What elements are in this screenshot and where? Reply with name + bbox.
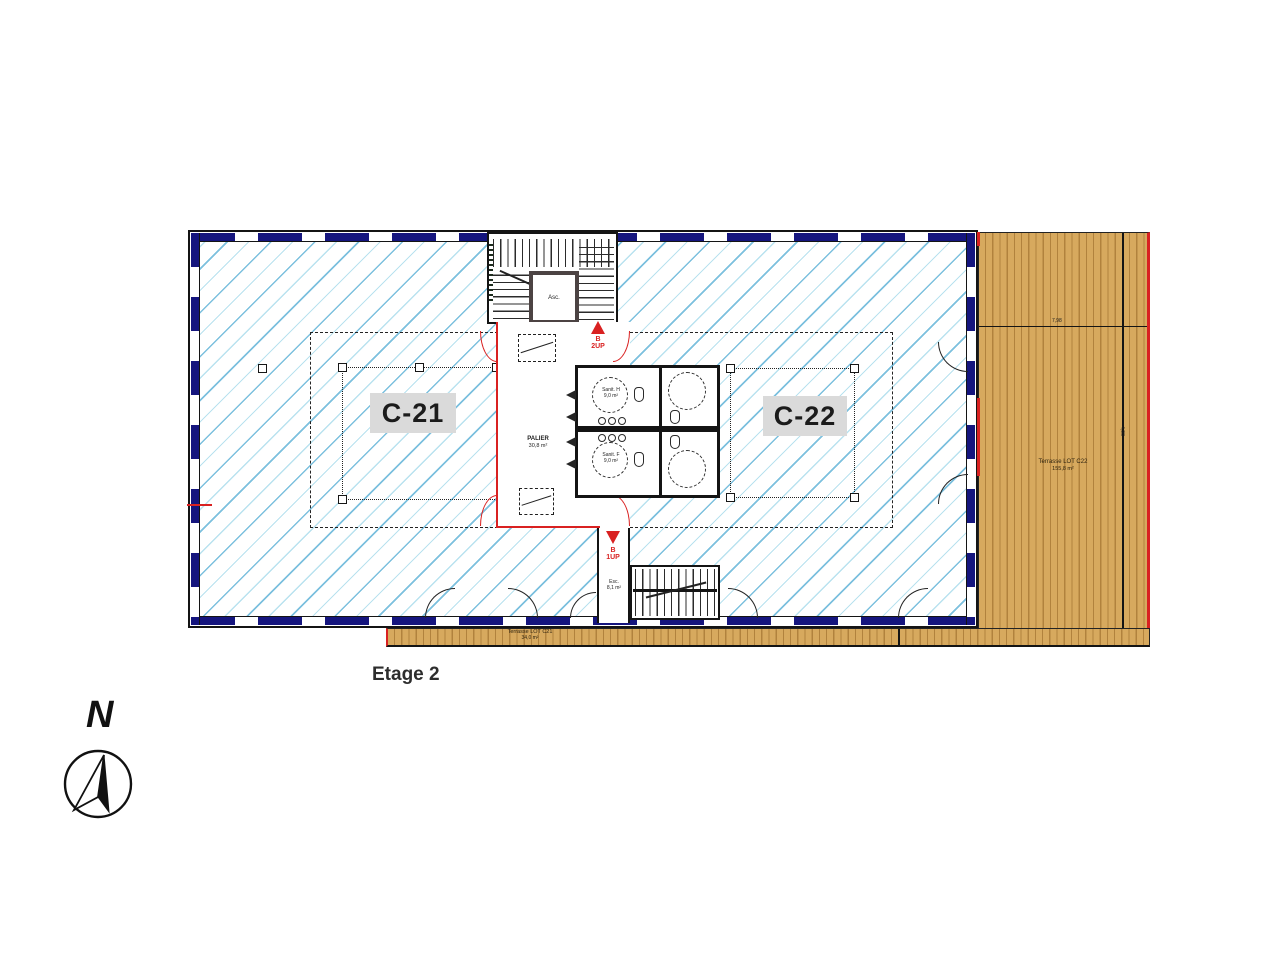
sink <box>618 434 626 442</box>
toilet <box>634 452 644 467</box>
floor-title: Etage 2 <box>372 664 440 686</box>
zone-c22-text: C-22 <box>774 401 837 432</box>
corner-marker <box>258 364 267 373</box>
toilet <box>670 410 680 424</box>
palier-label: PALIER 30,8 m² <box>508 436 568 450</box>
window-band-right <box>966 233 975 625</box>
stair-down-letter: B <box>610 547 615 554</box>
zone-c21-dotted <box>342 367 497 500</box>
duct-box <box>518 334 556 362</box>
corner-marker <box>850 493 859 502</box>
toilet <box>634 387 644 402</box>
red-edge-segment <box>977 232 980 246</box>
sanitary-mid-wall <box>575 426 720 432</box>
stair-flight-right <box>579 245 614 320</box>
corner-marker <box>338 495 347 504</box>
red-tick <box>187 504 212 506</box>
north-letter: N <box>86 694 113 737</box>
stair-down-arrow <box>606 531 620 544</box>
duct-box <box>519 488 554 515</box>
sanit-f-label: Sanit. F 9,0 m² <box>594 453 628 464</box>
terrace-c22-label: Terrasse LOT C22 155,8 m² <box>1008 459 1118 473</box>
fixture <box>566 412 576 422</box>
dimension-line-v <box>1122 233 1124 644</box>
toilet <box>670 435 680 449</box>
elevator-label: Asc. <box>548 295 560 301</box>
terrace-c21-area: 34,0 m² <box>522 635 539 641</box>
stair-down-dir: 1UP <box>606 554 620 561</box>
sink <box>598 417 606 425</box>
stair-up-dir: 2UP <box>591 343 605 350</box>
sink <box>618 417 626 425</box>
terrace-divider <box>898 629 900 646</box>
sanitary-partition <box>659 368 662 495</box>
accessible-circle <box>668 450 706 488</box>
stair-up-label: B 2UP <box>586 336 610 350</box>
palier-name: PALIER <box>527 436 549 442</box>
sanit-h-area: 9,0 m² <box>604 393 618 399</box>
sanit-h-label: Sanit. H 9,0 m² <box>594 388 628 399</box>
red-edge-segment <box>977 398 980 476</box>
terrace-c21-label: Terrasse LOT C21 34,0 m² <box>470 629 590 641</box>
stair-down-label: B 1UP <box>601 547 625 561</box>
corner-marker <box>415 363 424 372</box>
sink <box>608 417 616 425</box>
corner-marker <box>726 493 735 502</box>
lot-separation-red-bottom <box>497 526 600 528</box>
shaft-marks <box>489 243 493 301</box>
corner-marker <box>338 363 347 372</box>
esc-label: Esc. 8,1 m² <box>599 580 629 591</box>
corner-marker <box>726 364 735 373</box>
accessible-circle <box>668 372 706 410</box>
floor-plan-sheet: Asc. B 2UP PALIER 30,8 m² San <box>0 0 1280 960</box>
duct-slash <box>522 495 552 506</box>
terrace-c22 <box>978 232 1150 645</box>
terrace-c22-name: Terrasse LOT C22 <box>1039 459 1088 465</box>
sink <box>608 434 616 442</box>
stair-up-arrow <box>591 321 605 334</box>
zone-label-c22: C-22 <box>763 396 847 436</box>
stair-up-letter: B <box>595 336 600 343</box>
palier-area: 30,8 m² <box>529 443 548 449</box>
elevator-cab: Asc. <box>529 271 579 324</box>
stair-flight-lower <box>635 569 715 616</box>
zone-c21-text: C-21 <box>382 398 445 429</box>
sanit-f-area: 9,0 m² <box>604 458 618 464</box>
dimension-height: 4,98 <box>1119 426 1125 436</box>
window-band-left <box>191 233 200 625</box>
fixture <box>566 437 576 447</box>
corner-marker <box>850 364 859 373</box>
fixture <box>566 459 576 469</box>
esc-area: 8,1 m² <box>607 585 621 591</box>
zone-label-c21: C-21 <box>370 393 456 433</box>
terrace-c22-area: 155,8 m² <box>1052 466 1074 472</box>
sink <box>598 434 606 442</box>
duct-slash <box>521 342 554 354</box>
dimension-width: 7,98 <box>1052 318 1062 324</box>
north-compass-icon <box>62 748 134 820</box>
fixture <box>566 390 576 400</box>
